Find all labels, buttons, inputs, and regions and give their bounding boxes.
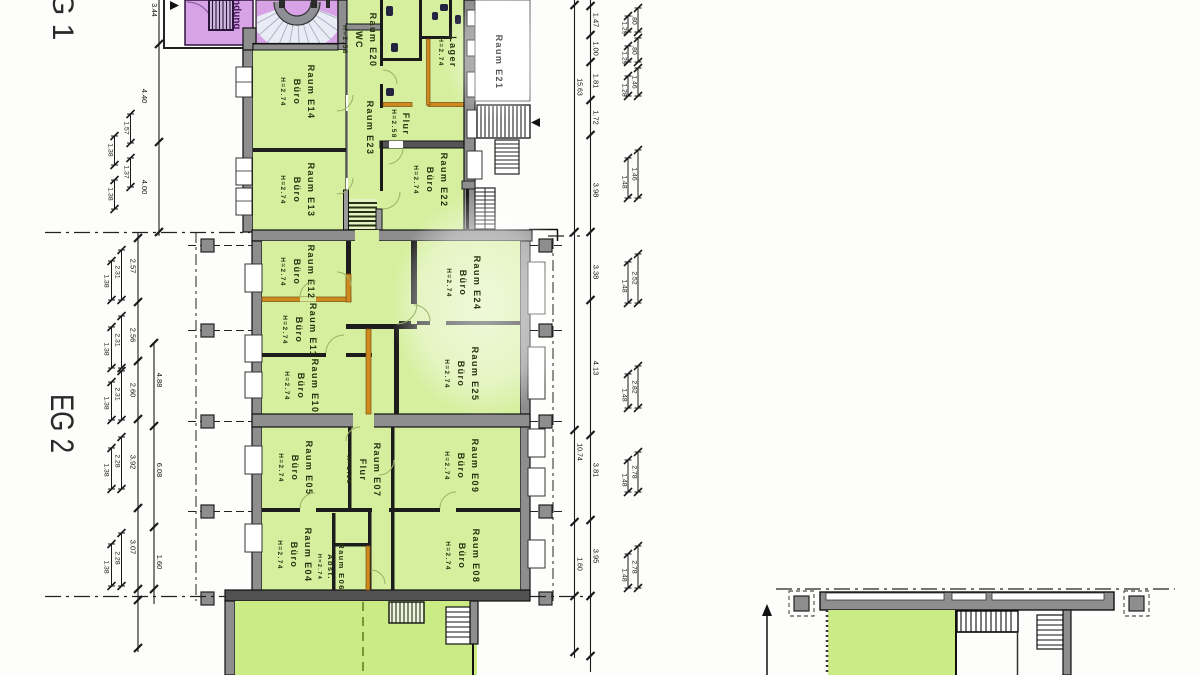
svg-text:2.31: 2.31: [114, 265, 121, 278]
svg-text:Raum E05: Raum E05: [304, 441, 314, 496]
svg-text:4.40: 4.40: [140, 89, 149, 104]
svg-text:Büro: Büro: [294, 317, 304, 344]
svg-text:10.74: 10.74: [576, 443, 583, 461]
svg-text:Raum E10: Raum E10: [310, 359, 320, 414]
svg-text:H=2.74: H=2.74: [279, 77, 286, 107]
svg-text:1.60: 1.60: [155, 555, 164, 570]
svg-text:1.29: 1.29: [621, 21, 628, 34]
svg-text:1.48: 1.48: [621, 388, 628, 401]
svg-text:4.88: 4.88: [155, 373, 164, 388]
svg-text:Raum E11: Raum E11: [308, 303, 318, 357]
svg-text:2.28: 2.28: [114, 551, 121, 564]
svg-text:H=2.58: H=2.58: [345, 455, 352, 485]
svg-text:Büro: Büro: [290, 455, 300, 482]
svg-text:2.78: 2.78: [631, 560, 638, 573]
svg-text:2.56: 2.56: [129, 328, 138, 343]
svg-text:3.98: 3.98: [592, 183, 601, 198]
svg-text:H=2.74: H=2.74: [279, 175, 286, 205]
svg-text:Raum E14: Raum E14: [306, 65, 316, 120]
svg-text:1.38: 1.38: [103, 274, 110, 287]
svg-text:H=2.74: H=2.74: [437, 37, 444, 67]
svg-text:3.44: 3.44: [150, 3, 157, 17]
svg-text:1.29: 1.29: [621, 51, 628, 64]
svg-text:2.52: 2.52: [631, 271, 638, 284]
svg-text:ndung: ndung: [231, 0, 242, 30]
svg-text:Raum E07: Raum E07: [372, 443, 382, 498]
svg-text:Raum E04: Raum E04: [303, 528, 313, 583]
svg-text:1.37: 1.37: [123, 165, 130, 178]
svg-text:.80: .80: [631, 15, 638, 25]
svg-text:1.38: 1.38: [107, 187, 114, 200]
svg-text:2.31: 2.31: [114, 387, 121, 400]
svg-text:Raum E08: Raum E08: [471, 529, 481, 584]
svg-text:1.38: 1.38: [103, 396, 110, 409]
svg-text:2.57: 2.57: [129, 259, 138, 274]
svg-text:1.38: 1.38: [107, 143, 114, 156]
svg-text:Büro: Büro: [458, 270, 468, 297]
svg-text:Büro: Büro: [289, 542, 299, 569]
svg-text:6.08: 6.08: [155, 463, 164, 478]
svg-text:1.46: 1.46: [631, 75, 638, 88]
svg-text:Büro: Büro: [292, 177, 302, 204]
svg-text:H=2.74: H=2.74: [283, 371, 290, 401]
svg-text:2.82: 2.82: [631, 380, 638, 393]
svg-text:H=2.74: H=2.74: [281, 315, 288, 345]
svg-text:Raum E12: Raum E12: [306, 245, 316, 300]
svg-text:H=2.58: H=2.58: [341, 25, 348, 55]
svg-text:Raum E21: Raum E21: [494, 35, 504, 90]
svg-text:Raum E25: Raum E25: [470, 347, 480, 402]
svg-text:H=2.74: H=2.74: [443, 359, 450, 389]
svg-text:Flur: Flur: [401, 113, 411, 136]
svg-text:H=2.74: H=2.74: [279, 257, 286, 287]
svg-text:H=2.74: H=2.74: [316, 554, 322, 580]
svg-text:Raum E24: Raum E24: [472, 256, 482, 311]
svg-text:1.38: 1.38: [103, 342, 110, 355]
svg-text:3.95: 3.95: [592, 549, 601, 564]
svg-text:H=2.74: H=2.74: [276, 540, 283, 570]
svg-text:Büro: Büro: [457, 543, 467, 570]
svg-text:2.78: 2.78: [631, 465, 638, 478]
svg-text:Büro: Büro: [292, 259, 302, 286]
svg-text:Abst.: Abst.: [326, 554, 335, 580]
svg-text:2.60: 2.60: [129, 383, 138, 398]
svg-text:15.63: 15.63: [576, 78, 583, 96]
svg-text:Raum E06: Raum E06: [337, 543, 346, 590]
svg-text:1.47: 1.47: [592, 13, 601, 28]
svg-text:H=2.74: H=2.74: [443, 451, 450, 481]
svg-text:1.72: 1.72: [592, 110, 601, 125]
svg-text:1.00: 1.00: [592, 41, 601, 56]
svg-text:1.48: 1.48: [621, 473, 628, 486]
svg-text:Büro: Büro: [456, 453, 466, 480]
svg-text:1.48: 1.48: [621, 175, 628, 188]
svg-text:.80: .80: [631, 45, 638, 55]
svg-text:G 1: G 1: [46, 0, 79, 40]
svg-text:2.28: 2.28: [114, 454, 121, 467]
svg-text:3.38: 3.38: [592, 265, 601, 280]
svg-text:Raum E09: Raum E09: [470, 439, 480, 494]
svg-text:Lager: Lager: [448, 36, 458, 68]
svg-text:4.00: 4.00: [140, 180, 149, 195]
svg-text:H=2.74: H=2.74: [277, 453, 284, 483]
svg-text:Büro: Büro: [292, 79, 302, 106]
svg-text:Raum E23: Raum E23: [365, 101, 375, 156]
svg-text:Raum E13: Raum E13: [306, 163, 316, 218]
svg-text:Büro: Büro: [456, 361, 466, 388]
svg-text:3.07: 3.07: [129, 540, 138, 555]
svg-text:1.38: 1.38: [103, 560, 110, 573]
svg-text:4.13: 4.13: [592, 361, 601, 376]
svg-text:Büro: Büro: [425, 167, 435, 194]
svg-text:1.48: 1.48: [621, 279, 628, 292]
svg-text:WC: WC: [354, 31, 364, 49]
svg-text:3.81: 3.81: [592, 463, 601, 478]
svg-text:2.31: 2.31: [114, 333, 121, 346]
svg-text:H=2.58: H=2.58: [390, 109, 397, 139]
svg-text:EG 2: EG 2: [44, 394, 80, 453]
svg-text:1.81: 1.81: [592, 74, 601, 89]
svg-text:Raum E20: Raum E20: [368, 13, 378, 68]
svg-text:Raum E22: Raum E22: [439, 153, 449, 208]
svg-text:Flur: Flur: [358, 459, 368, 482]
svg-text:3.92: 3.92: [129, 455, 138, 470]
svg-text:1.57: 1.57: [123, 121, 130, 134]
svg-text:1.60: 1.60: [576, 557, 583, 571]
svg-text:1.28: 1.28: [621, 83, 628, 96]
svg-text:H=2.74: H=2.74: [444, 541, 451, 571]
svg-text:H=2.74: H=2.74: [445, 268, 452, 298]
svg-text:H=2.74: H=2.74: [412, 165, 419, 195]
svg-text:Büro: Büro: [296, 373, 306, 400]
svg-text:1.48: 1.48: [621, 568, 628, 581]
svg-text:1.46: 1.46: [631, 167, 638, 180]
svg-text:1.38: 1.38: [103, 463, 110, 476]
